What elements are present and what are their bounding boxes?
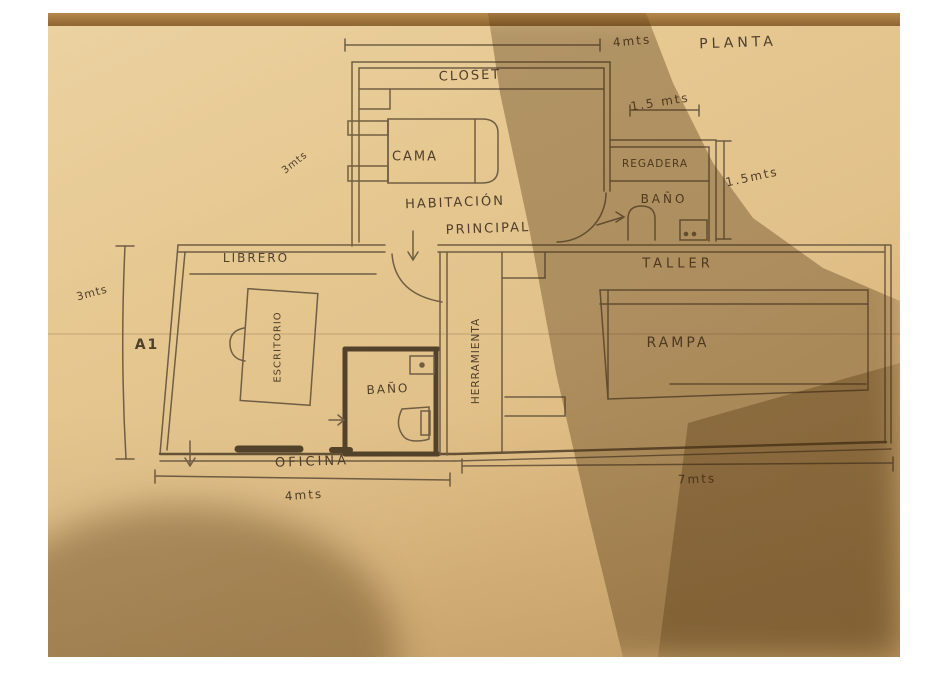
bedroom-door-arc: [557, 193, 606, 242]
bath-door-arch: [628, 206, 655, 240]
shower-label: REGADERA: [622, 158, 688, 170]
toilet-shape-office: [398, 407, 430, 441]
furniture-shading: [238, 449, 350, 450]
office-label: OFICINA: [275, 453, 350, 471]
photo-of-floor-plan: PLANTA 4mts CLOSET CAMA 1.5 mts REGADERA…: [0, 0, 952, 673]
workshop-label: TALLER: [642, 257, 714, 272]
ramp-shape: [600, 290, 868, 399]
office-door-arc: [392, 254, 442, 302]
office-walls: [160, 245, 455, 461]
desk-label: ESCRITORIO: [273, 311, 284, 382]
shower-bath-walls: [610, 140, 716, 241]
bath-office-label: BAÑO: [366, 381, 410, 397]
closet-left-box: [359, 89, 390, 109]
bedroom-exit-arrow-icon: [408, 231, 418, 260]
corridor-walls: [440, 252, 545, 455]
sheet-label: A1: [135, 337, 160, 353]
ramp-label: RAMPA: [647, 335, 710, 351]
dimension-label-workshop-width: 7mts: [678, 471, 717, 486]
bed-label: CAMA: [392, 150, 438, 165]
plan-title: PLANTA: [699, 34, 777, 53]
office-bath-arrow-icon: [329, 415, 344, 425]
toilet-shape-top: [680, 220, 707, 240]
dimension-label-office-width: 4mts: [284, 487, 323, 504]
bedroom-label-line2: PRINCIPAL: [446, 220, 531, 238]
closet-label: CLOSET: [439, 67, 502, 84]
bedroom-walls: [352, 62, 610, 246]
bookshelf-label: LIBRERO: [223, 251, 289, 265]
sink-shape: [410, 356, 434, 374]
paper-sheet: PLANTA 4mts CLOSET CAMA 1.5 mts REGADERA…: [48, 13, 900, 657]
bath-top-label: BAÑO: [641, 192, 688, 206]
tools-label: HERRAMIENTA: [470, 318, 482, 404]
